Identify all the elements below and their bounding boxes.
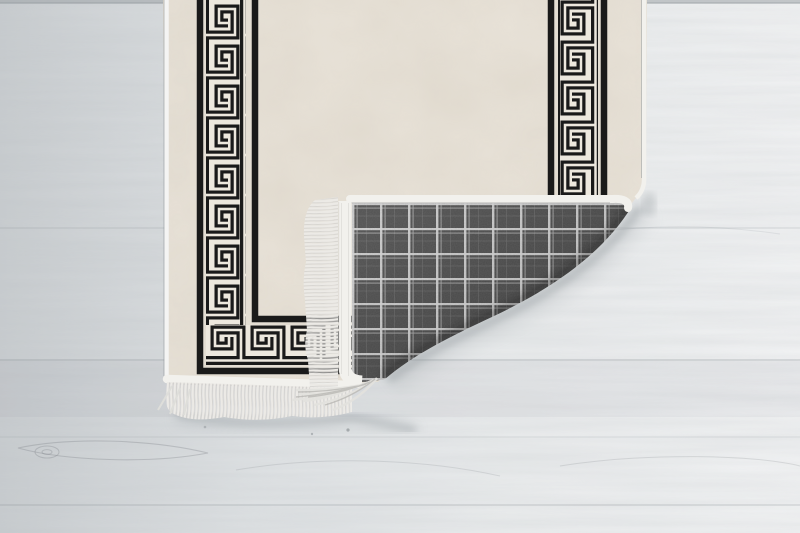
- folded-corner-fringe-strands: [304, 197, 338, 396]
- corner-tip-shadow: [642, 192, 656, 216]
- screenshot-root: [0, 0, 800, 533]
- greek-key-band-left: [206, 0, 246, 325]
- rug-product-photo: [0, 0, 800, 533]
